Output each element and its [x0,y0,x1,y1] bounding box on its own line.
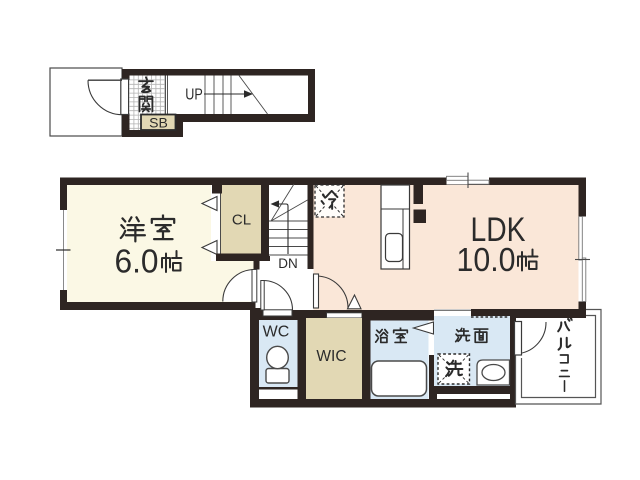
svg-text:WC: WC [263,324,290,341]
svg-text:6.0: 6.0 [115,243,159,280]
svg-text:CL: CL [232,212,251,229]
svg-text:DN: DN [278,256,298,271]
svg-text:SB: SB [149,115,168,131]
svg-text:WIC: WIC [316,348,346,365]
svg-text:10.0: 10.0 [457,241,516,278]
svg-text:UP: UP [185,87,203,104]
